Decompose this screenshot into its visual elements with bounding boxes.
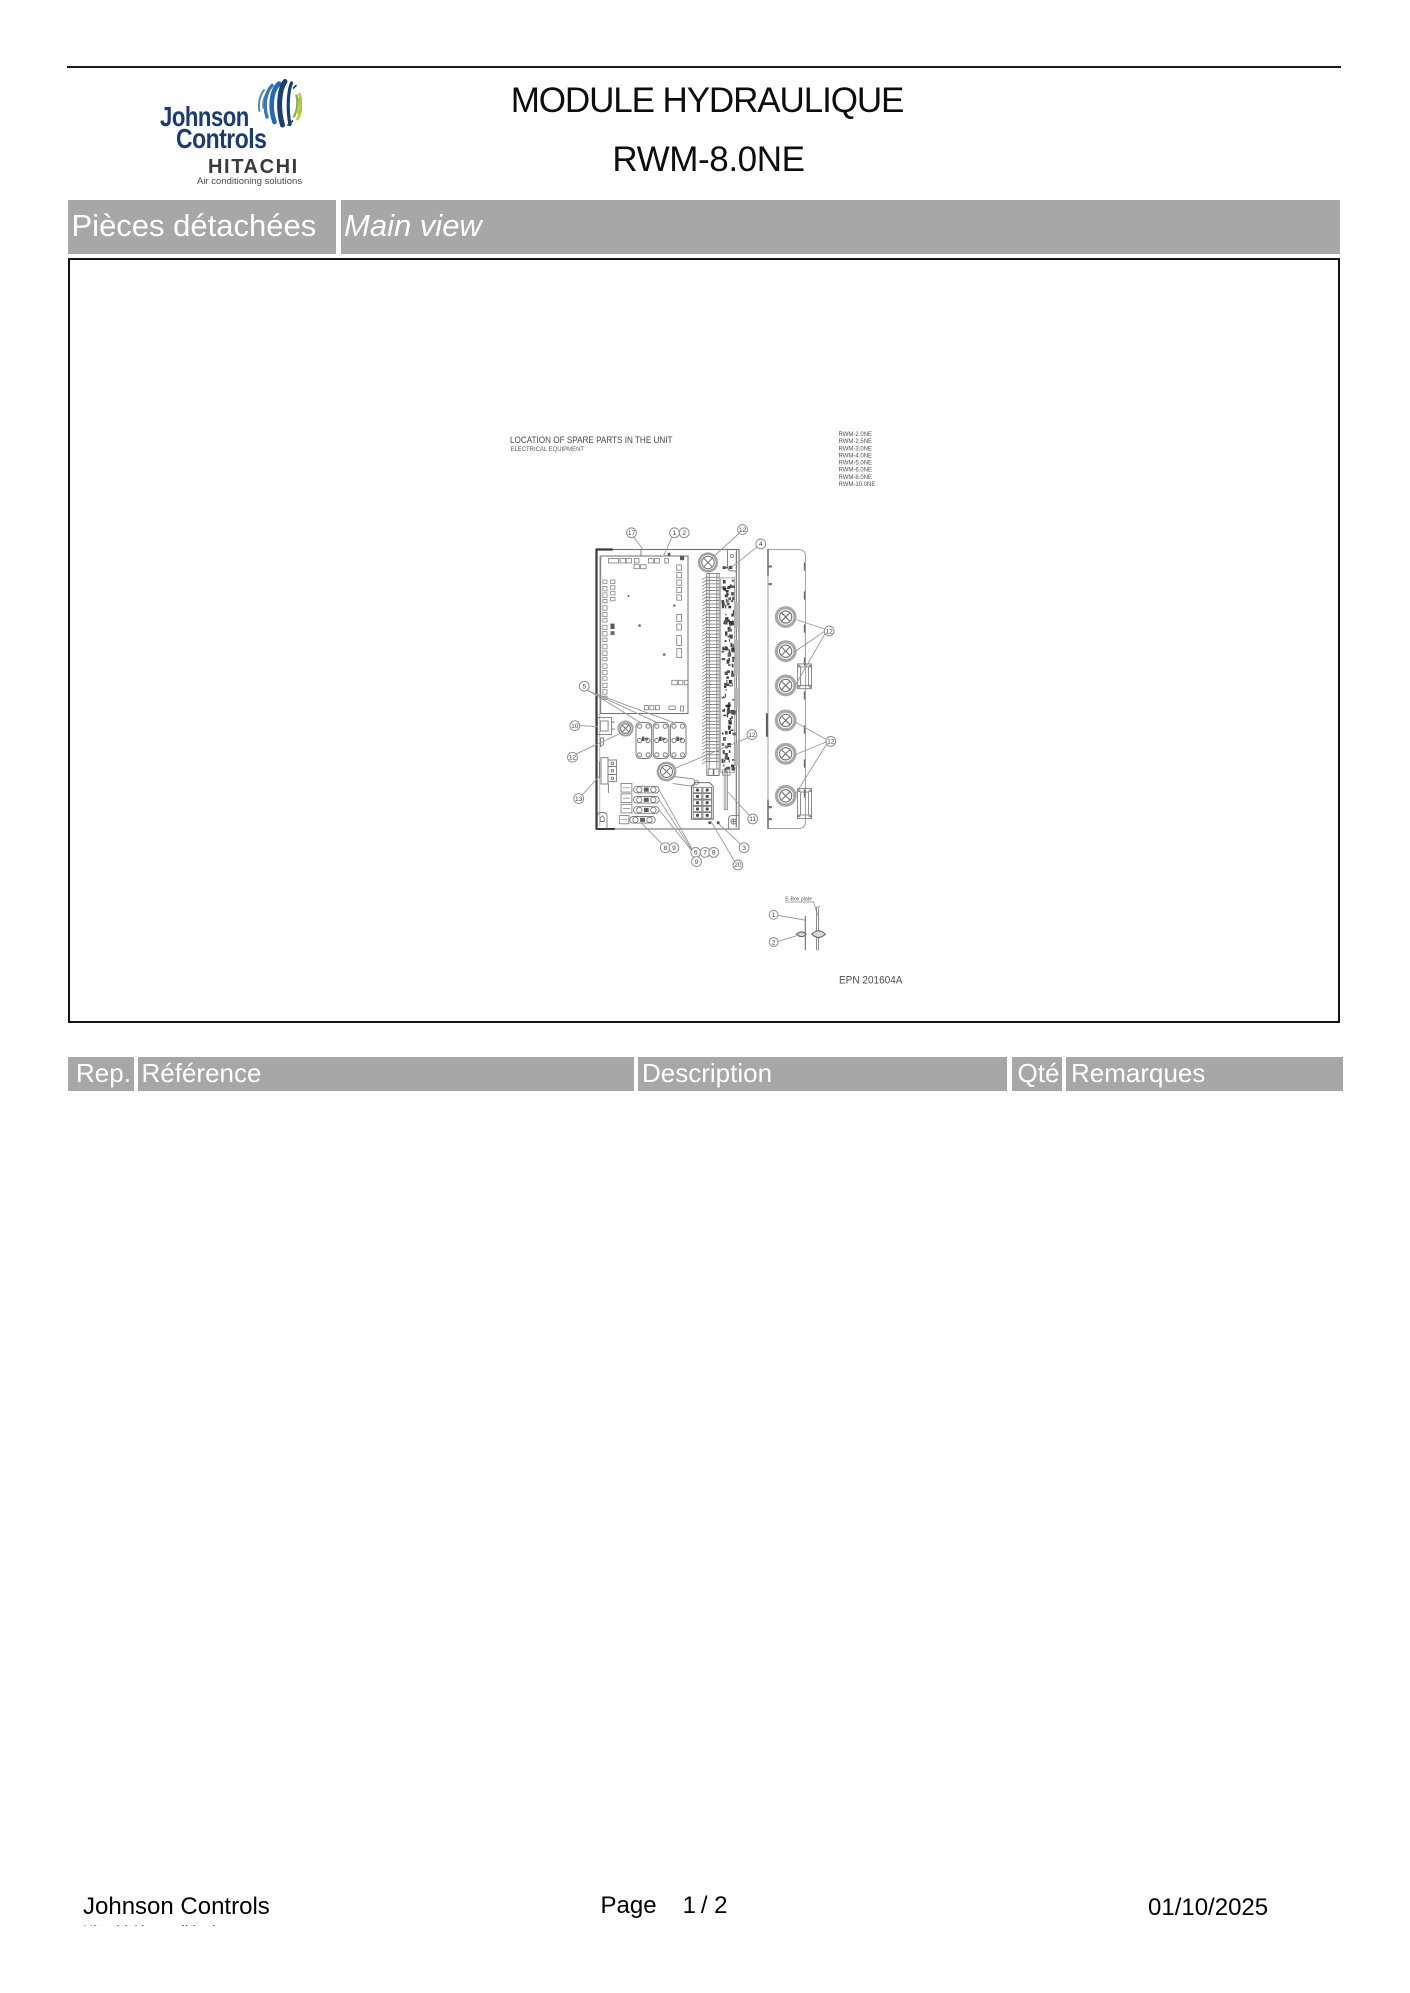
svg-text:RWM-3.0NE: RWM-3.0NE [839,446,873,452]
svg-text:7: 7 [703,850,707,857]
svg-text:RWM-8.0NE: RWM-8.0NE [839,475,873,481]
svg-text:RWM-6.0NE: RWM-6.0NE [839,468,873,474]
svg-text:3: 3 [742,845,746,852]
svg-text:8: 8 [663,845,667,852]
svg-text:12: 12 [748,732,756,739]
svg-text:12: 12 [739,527,747,534]
svg-text:20: 20 [734,862,742,869]
svg-text:RWM-2.5NE: RWM-2.5NE [839,439,873,445]
svg-text:LOCATION OF SPARE PARTS IN THE: LOCATION OF SPARE PARTS IN THE UNIT [510,434,673,445]
svg-text:11: 11 [749,816,756,823]
svg-text:1: 1 [673,530,677,537]
svg-text:8: 8 [712,850,716,857]
svg-text:12: 12 [826,628,834,635]
svg-text:17: 17 [628,530,636,537]
svg-text:5: 5 [582,684,586,691]
svg-text:2: 2 [772,939,776,946]
svg-text:4: 4 [759,541,763,548]
svg-text:ELECTRICAL EQUIPMENT: ELECTRICAL EQUIPMENT [511,447,585,453]
svg-text:EPN 201604A: EPN 201604A [839,975,903,987]
svg-text:RWM-5.0NE: RWM-5.0NE [839,461,873,467]
svg-text:12: 12 [827,739,835,746]
svg-text:RWM-10.0NE: RWM-10.0NE [839,482,876,488]
svg-text:RWM-2.0NE: RWM-2.0NE [839,432,873,438]
svg-text:2: 2 [682,530,686,537]
svg-text:1: 1 [772,912,776,919]
svg-text:12: 12 [569,755,577,762]
svg-text:13: 13 [575,796,583,803]
svg-text:9: 9 [672,845,676,852]
svg-text:10: 10 [571,723,579,730]
svg-text:9: 9 [695,859,699,866]
svg-text:6: 6 [694,850,698,857]
svg-text:RWM-4.0NE: RWM-4.0NE [839,453,873,459]
